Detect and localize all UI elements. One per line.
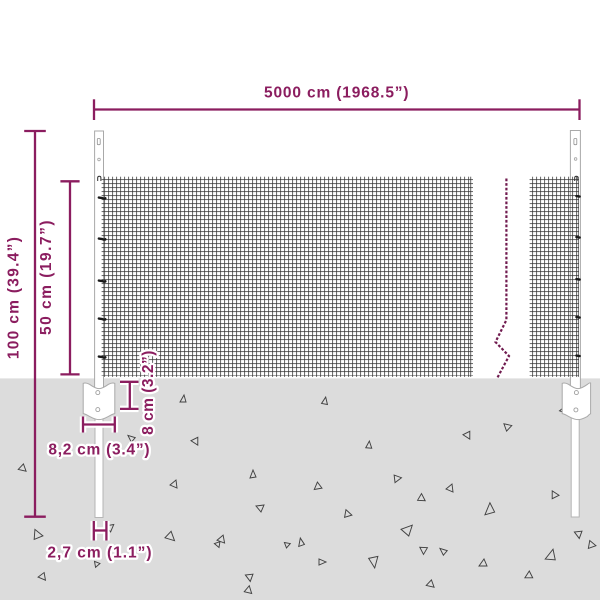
svg-text:8 cm (3.2”): 8 cm (3.2”) [140, 350, 157, 435]
svg-text:8,2 cm (3.4”): 8,2 cm (3.4”) [48, 442, 150, 459]
svg-text:100 cm (39.4”): 100 cm (39.4”) [6, 236, 23, 359]
svg-text:50 cm (19.7”): 50 cm (19.7”) [38, 219, 55, 335]
svg-text:2,7 cm (1.1”): 2,7 cm (1.1”) [47, 545, 152, 562]
svg-text:5000 cm (1968.5”): 5000 cm (1968.5”) [264, 85, 409, 102]
